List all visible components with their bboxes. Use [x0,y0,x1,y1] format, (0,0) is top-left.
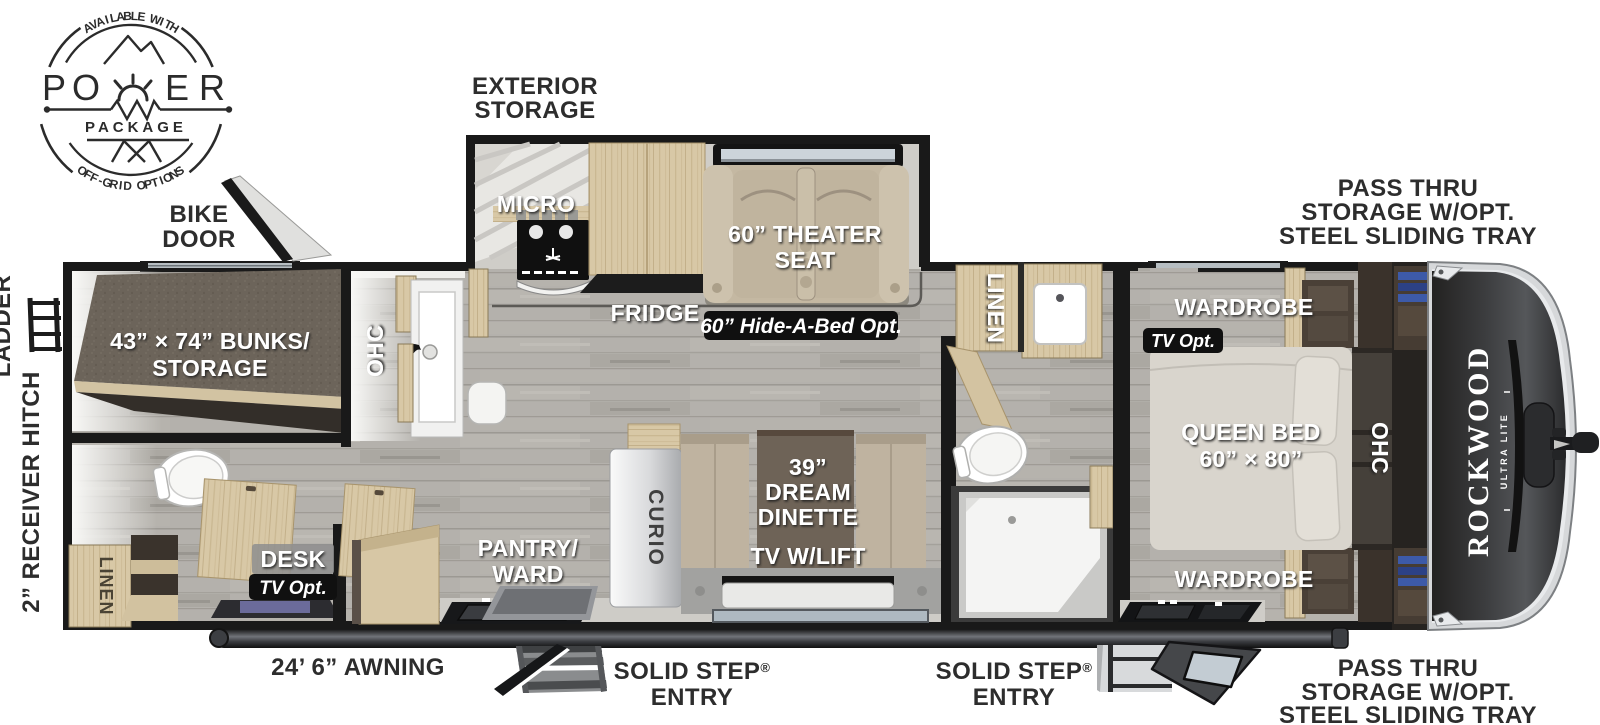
svg-text:TV W/LIFT: TV W/LIFT [750,543,865,569]
svg-text:OHC: OHC [1367,422,1393,474]
svg-text:TV Opt.: TV Opt. [259,578,327,599]
svg-text:60” THEATER: 60” THEATER [728,221,882,247]
svg-text:CURIO: CURIO [644,489,667,567]
svg-text:QUEEN BED: QUEEN BED [1181,419,1320,445]
svg-text:PASS THRU: PASS THRU [1338,175,1479,202]
svg-text:FRIDGE: FRIDGE [611,300,700,326]
svg-text:STEEL SLIDING TRAY: STEEL SLIDING TRAY [1279,702,1537,725]
svg-text:ENTRY: ENTRY [651,684,733,711]
svg-text:PANTRY/: PANTRY/ [478,535,579,561]
svg-text:60” Hide-A-Bed Opt.: 60” Hide-A-Bed Opt. [700,315,902,338]
svg-text:ENTRY: ENTRY [973,684,1055,711]
svg-text:WARDROBE: WARDROBE [1174,566,1313,592]
svg-text:O: O [72,67,100,108]
svg-text:PACKAGE: PACKAGE [85,119,187,136]
svg-text:STORAGE: STORAGE [474,97,595,124]
svg-text:D: D [123,179,133,193]
svg-text:60” × 80”: 60” × 80” [1199,446,1302,472]
svg-text:WARD: WARD [492,561,563,587]
svg-text:MICRO: MICRO [497,191,575,217]
svg-text:BIKE: BIKE [170,201,229,228]
svg-text:ULTRA LITE: ULTRA LITE [1499,413,1509,490]
svg-text:E: E [165,67,189,108]
svg-text:ROCKWOOD: ROCKWOOD [1462,345,1495,557]
svg-text:WARDROBE: WARDROBE [1174,294,1313,320]
svg-text:DOOR: DOOR [162,226,236,253]
svg-text:2” RECEIVER HITCH: 2” RECEIVER HITCH [18,371,45,613]
svg-text:24’ 6” AWNING: 24’ 6” AWNING [271,654,445,681]
svg-text:39”: 39” [789,454,827,480]
svg-text:LINEN: LINEN [983,273,1009,344]
svg-text:R: R [199,67,225,108]
svg-text:SOLID STEP®: SOLID STEP® [936,658,1093,685]
svg-text:STEEL SLIDING TRAY: STEEL SLIDING TRAY [1279,223,1537,250]
svg-text:LADDER: LADDER [0,275,16,377]
svg-text:LINEN: LINEN [96,557,116,616]
svg-text:DINETTE: DINETTE [758,504,859,530]
svg-text:SOLID STEP®: SOLID STEP® [614,658,771,685]
svg-text:DESK: DESK [260,546,325,572]
svg-text:DREAM: DREAM [765,479,851,505]
svg-text:P: P [42,67,66,108]
svg-text:STORAGE: STORAGE [152,355,267,381]
svg-text:STORAGE W/OPT.: STORAGE W/OPT. [1301,199,1514,226]
svg-text:EXTERIOR: EXTERIOR [472,73,598,100]
svg-text:SEAT: SEAT [775,247,836,273]
svg-text:OHC: OHC [362,325,388,377]
svg-text:43” × 74” BUNKS/: 43” × 74” BUNKS/ [110,328,310,354]
svg-text:PASS THRU: PASS THRU [1338,655,1479,682]
svg-text:TV Opt.: TV Opt. [1151,331,1215,351]
